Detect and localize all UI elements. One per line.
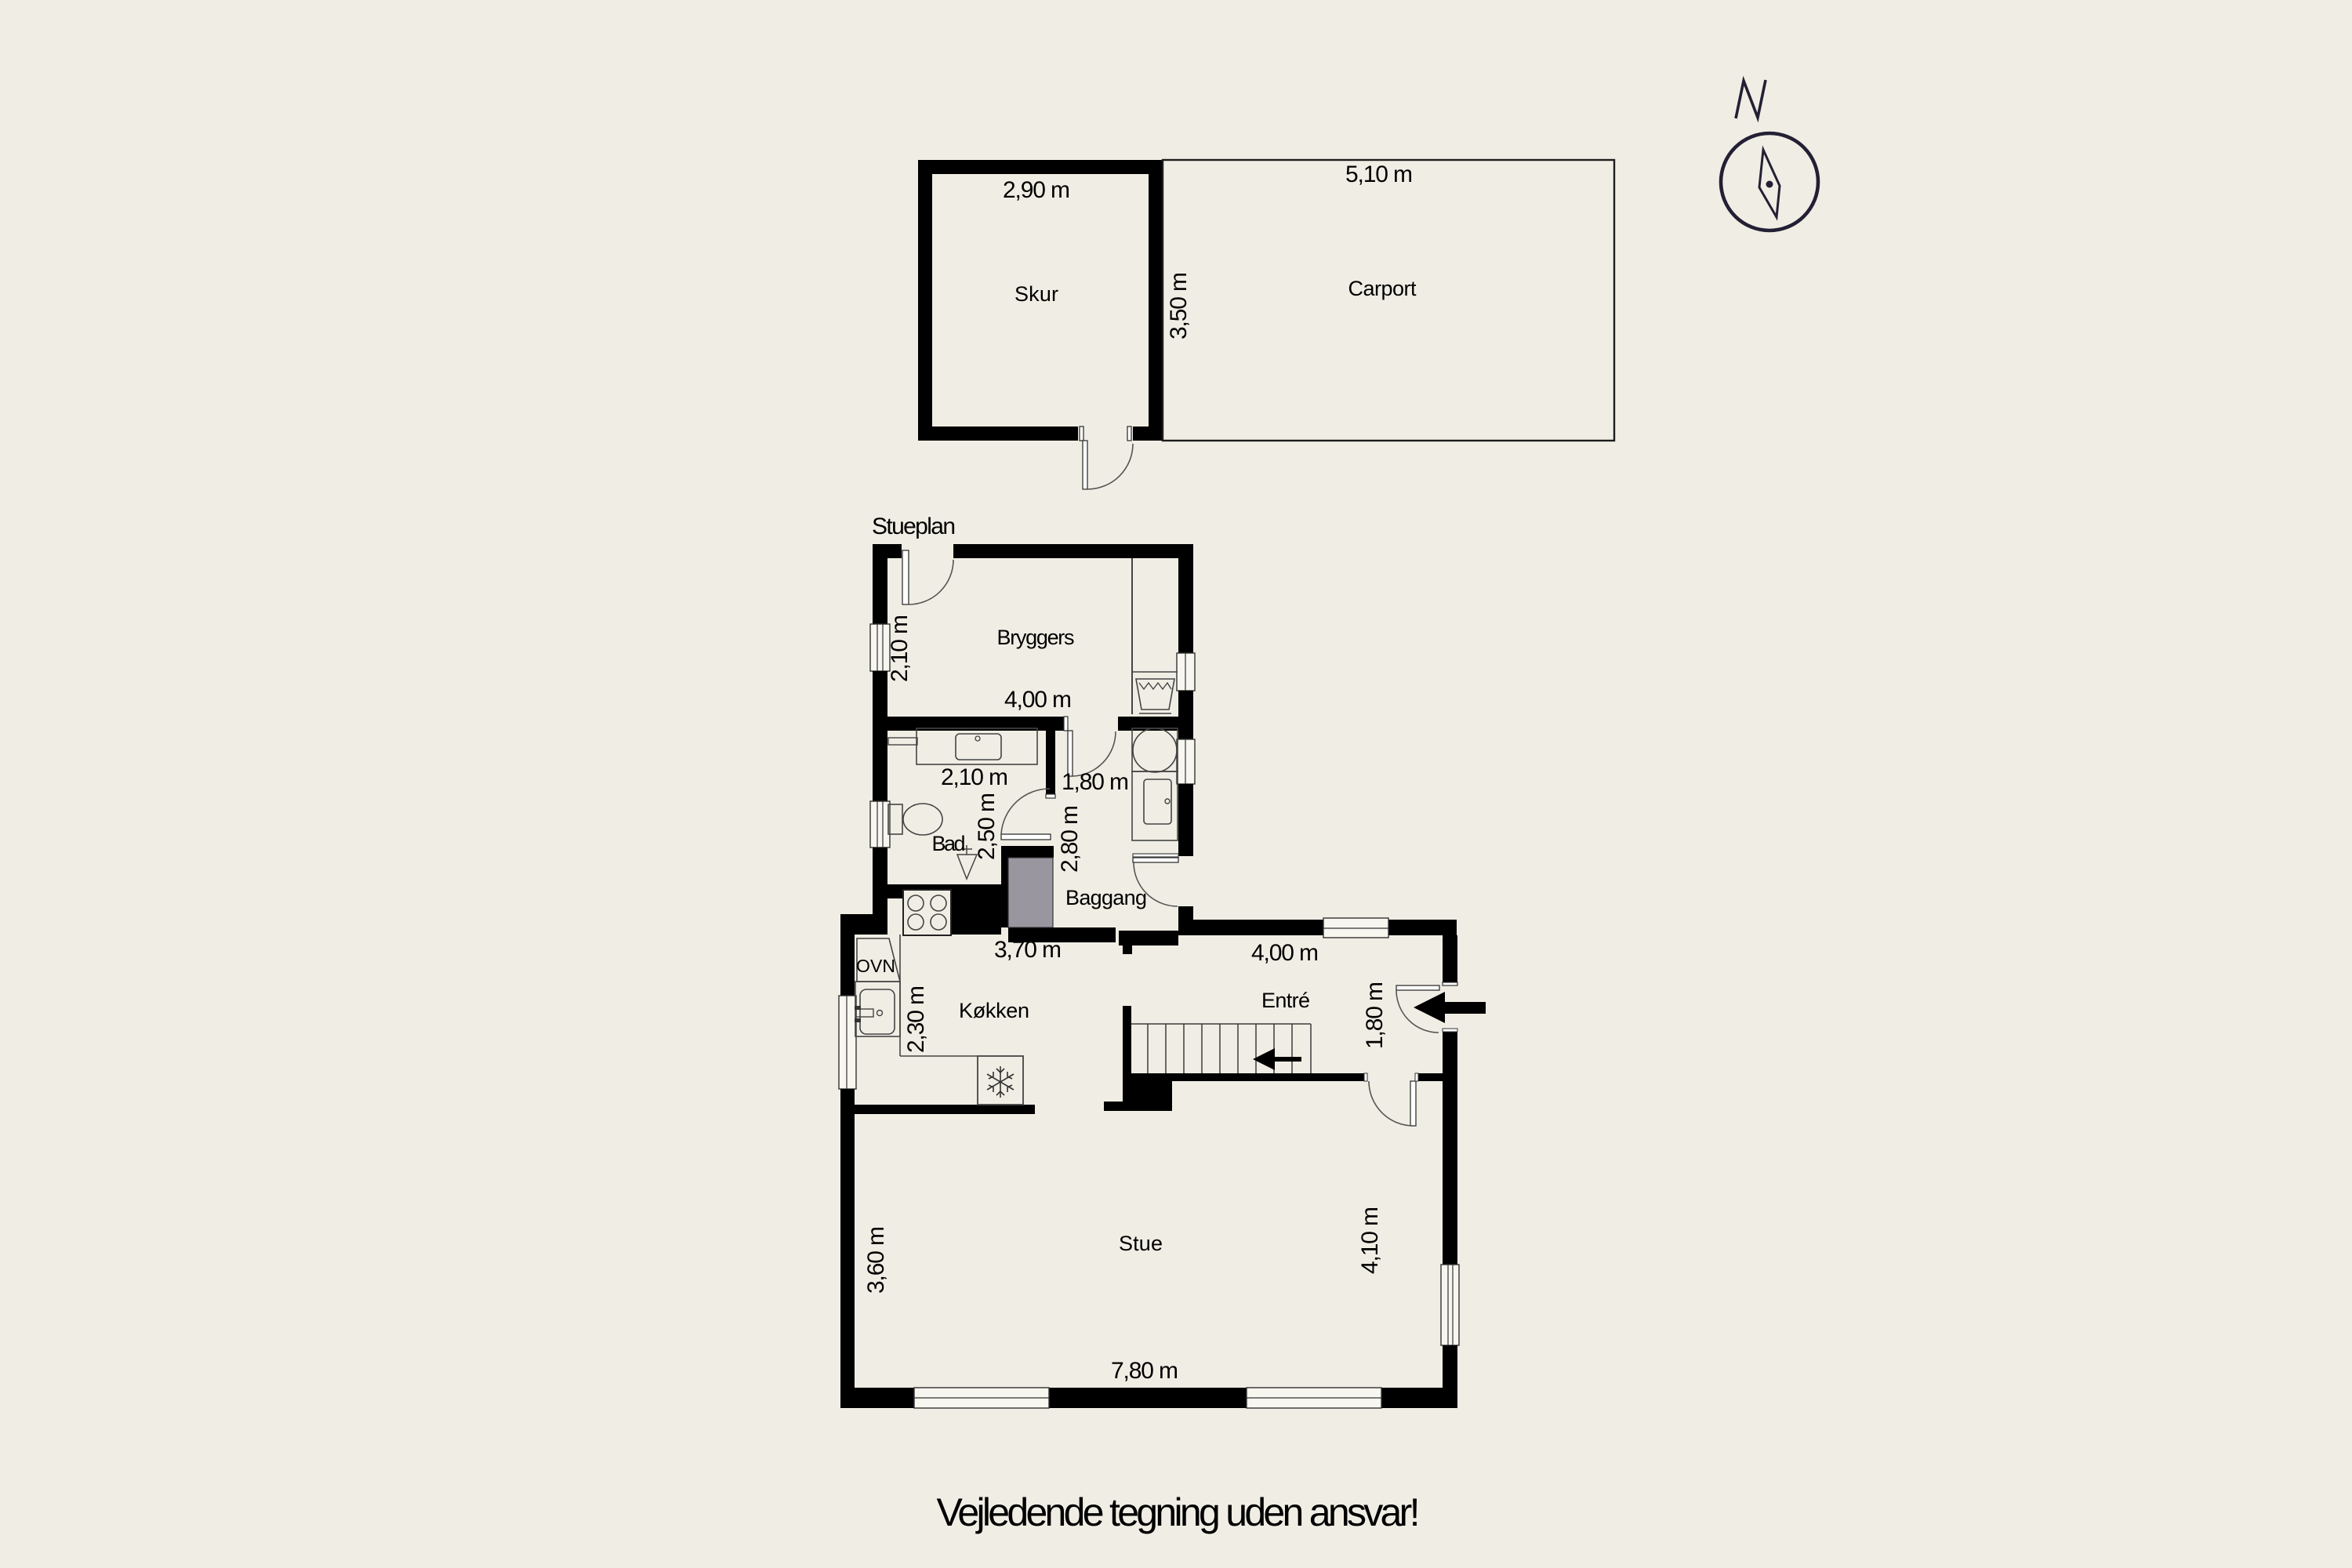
svg-text:1,80 m: 1,80 m [1062,769,1129,795]
svg-text:Køkken: Køkken [959,999,1029,1022]
svg-text:Stueplan: Stueplan [872,514,956,539]
svg-text:4,10 m: 4,10 m [1357,1207,1383,1274]
svg-text:Stue: Stue [1119,1232,1163,1255]
svg-text:4,00 m: 4,00 m [1004,687,1072,713]
svg-text:2,50 m: 2,50 m [974,793,1000,860]
svg-text:3,60 m: 3,60 m [863,1226,889,1294]
svg-text:7,80 m: 7,80 m [1111,1358,1178,1384]
svg-text:5,10 m: 5,10 m [1345,162,1413,187]
svg-text:2,80 m: 2,80 m [1057,805,1083,873]
svg-text:1,80 m: 1,80 m [1362,982,1388,1049]
svg-text:Bryggers: Bryggers [997,626,1075,649]
svg-text:2,30 m: 2,30 m [903,985,929,1053]
svg-text:3,50 m: 3,50 m [1166,272,1192,339]
svg-text:Skur: Skur [1014,282,1058,306]
svg-text:2,90 m: 2,90 m [1003,177,1070,203]
svg-text:OVN: OVN [856,956,895,976]
svg-text:Bad: Bad [932,832,966,855]
svg-text:Entré: Entré [1261,989,1310,1012]
svg-text:Baggang: Baggang [1065,886,1147,909]
svg-text:Vejledende tegning uden ansvar: Vejledende tegning uden ansvar! [937,1490,1421,1534]
svg-text:Carport: Carport [1348,277,1417,300]
svg-text:2,10 m: 2,10 m [887,615,913,682]
svg-text:4,00 m: 4,00 m [1251,940,1319,966]
svg-text:2,10 m: 2,10 m [941,764,1008,790]
svg-text:3,70 m: 3,70 m [994,937,1062,963]
